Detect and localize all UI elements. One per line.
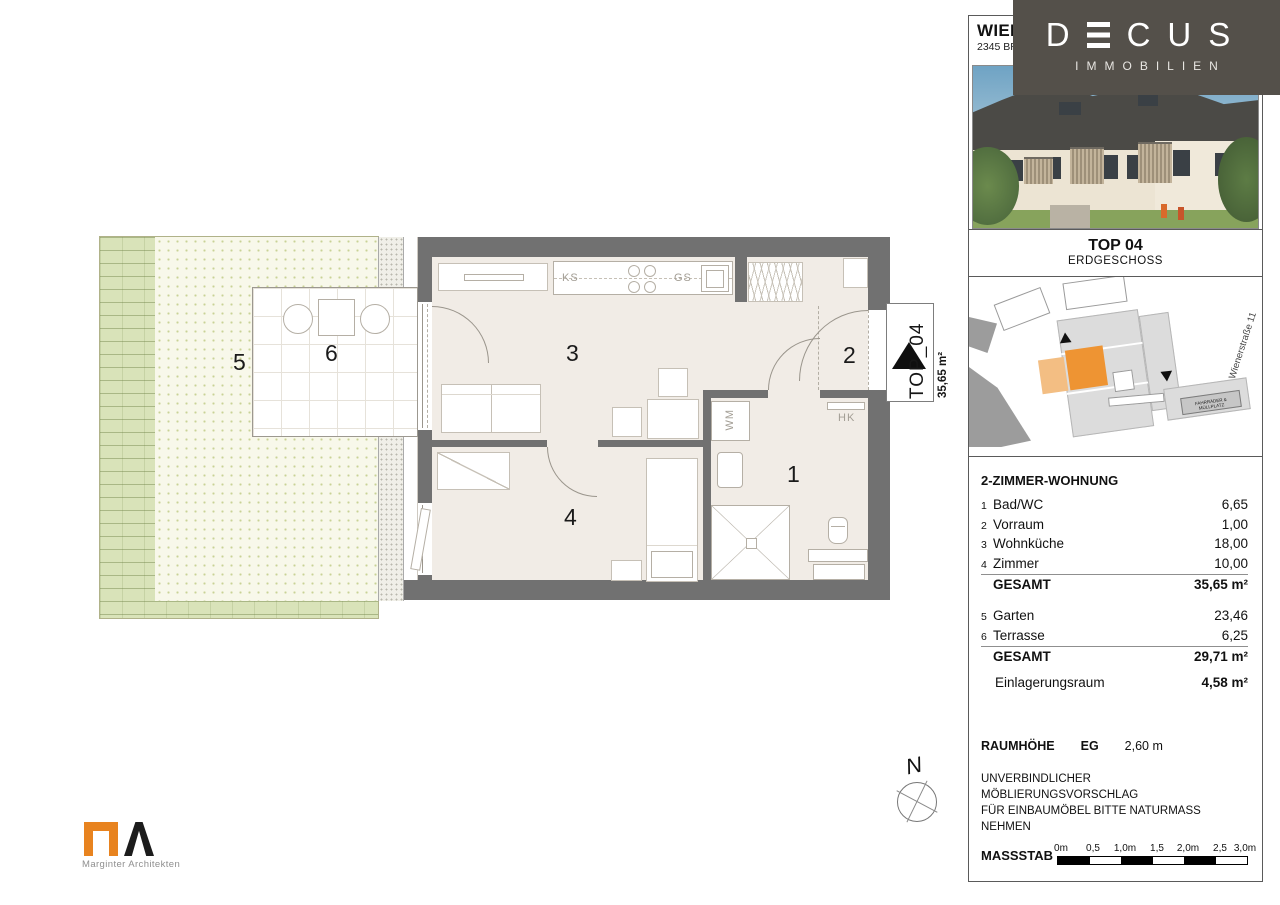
- table-row: 3 Wohnküche 18,00: [981, 535, 1248, 555]
- row-area: 18,00: [1214, 535, 1248, 554]
- brand-wordmark: D CUS: [1013, 0, 1280, 51]
- kitchen-sink: [701, 265, 729, 292]
- area-table: 2-ZIMMER-WOHNUNG 1 Bad/WC 6,65 2 Vorraum…: [969, 457, 1262, 881]
- photo-person: [1178, 207, 1184, 220]
- single-bed: [646, 458, 698, 582]
- unit-title: TOP 04: [969, 237, 1262, 255]
- brand-e-bars-icon: [1087, 22, 1110, 48]
- siteplan-building-group: [1045, 288, 1199, 450]
- wall-bottom: [404, 580, 890, 600]
- photo-grass: [973, 210, 1258, 228]
- row-area: 6,25: [1222, 627, 1248, 646]
- hall-radiator: [827, 402, 865, 410]
- architect-name: Marginter Architekten: [82, 859, 180, 870]
- room-height-floor: EG: [1081, 739, 1099, 753]
- room-number-bedroom: 4: [564, 504, 577, 531]
- storage-value: 4,58 m²: [1201, 673, 1248, 693]
- burner-4: [644, 281, 656, 293]
- table-row: 6 Terrasse 6,25: [981, 627, 1248, 648]
- bed-split-line: [491, 385, 492, 432]
- terrace-table: [318, 299, 355, 336]
- scale-tick: 1,5: [1141, 843, 1173, 854]
- sideboard: [438, 263, 548, 291]
- entry-marker-unit: TOP_04: [907, 307, 929, 399]
- room-height-value: 2,60 m: [1125, 739, 1163, 753]
- disclaimer-line-1: UNVERBINDLICHER MÖBLIERUNGSVORSCHLAG: [981, 771, 1248, 803]
- washing-machine: WM: [711, 401, 750, 441]
- double-bed: [441, 384, 541, 433]
- scale-ticks: 0m 0,5 1,0m 1,5 2,0m 2,5 3,0m: [1057, 843, 1249, 856]
- room-height-row: RAUMHÖHEEG2,60 m: [981, 739, 1248, 753]
- scale-tick: 3,0m: [1229, 843, 1261, 854]
- brand-subtitle: IMMOBILIEN: [1013, 59, 1280, 73]
- wall-bath-top-a: [703, 390, 768, 398]
- disclaimer-line-2: FÜR EINBAUMÖBEL BITTE NATURMASS NEHMEN: [981, 803, 1248, 835]
- row-name: Vorraum: [993, 516, 1222, 535]
- dishwasher-label: GS: [674, 272, 692, 284]
- burner-2: [644, 265, 656, 277]
- shower-drain: [746, 538, 757, 549]
- hedge-left: [100, 237, 155, 618]
- washbasin: [717, 452, 743, 488]
- photo-window: [1173, 150, 1190, 176]
- bath-vanity-bottom: [813, 564, 865, 580]
- shower: [711, 505, 790, 580]
- scale-bar-segments: [1057, 856, 1248, 865]
- wall-pillar-kitchen: [735, 257, 747, 302]
- table-row: 2 Vorraum 1,00: [981, 516, 1248, 536]
- unit-card: TOP 04 ERDGESCHOSS: [969, 229, 1262, 277]
- photo-path: [1050, 205, 1090, 228]
- disclaimer: UNVERBINDLICHER MÖBLIERUNGSVORSCHLAG FÜR…: [981, 771, 1248, 835]
- storage-row: Einlagerungsraum 4,58 m²: [981, 673, 1248, 693]
- wall-right-lower: [868, 390, 890, 580]
- row-number: 3: [981, 536, 988, 555]
- window-glass-line: [422, 304, 423, 428]
- floor-plan-sheet: 6 5 KS GS: [0, 0, 1280, 905]
- photo-person: [1161, 204, 1167, 219]
- siteplan-neighbor-1: [969, 317, 997, 353]
- siteplan-stair-box: [1112, 370, 1135, 393]
- bed-blanket-line: [647, 545, 697, 546]
- row-number: 5: [981, 608, 988, 627]
- corner-shelf: [843, 258, 868, 288]
- unit-floor: ERDGESCHOSS: [969, 255, 1262, 267]
- brand-logo: D CUS IMMOBILIEN: [1013, 0, 1280, 95]
- siteplan-roof-outline-2: [994, 287, 1051, 331]
- room-number-bath: 1: [787, 461, 800, 488]
- siteplan-neighbor-2: [969, 367, 1031, 447]
- terrace-door-window: [418, 302, 432, 430]
- scale-tick: 2,0m: [1172, 843, 1204, 854]
- row-name: Terrasse: [993, 627, 1222, 646]
- room-number-terrace: 6: [325, 340, 338, 367]
- site-plan: FAHRRÄDER & MÜLLPLATZ Wienerstraße 11: [969, 277, 1262, 457]
- photo-roof-window: [1059, 102, 1082, 115]
- scale-tick: 0m: [1045, 843, 1077, 854]
- apartment-type: 2-ZIMMER-WOHNUNG: [981, 473, 1248, 488]
- info-sidebar: WIEN 2345 BR: [968, 15, 1263, 882]
- sink-basin: [706, 270, 724, 288]
- wall-top: [418, 237, 890, 257]
- dining-chair-left: [612, 407, 642, 437]
- terrace-chair-right: [360, 304, 390, 334]
- wall-bath-left: [703, 390, 711, 580]
- dining-chair-top: [658, 368, 688, 397]
- terrace: 6: [252, 287, 418, 437]
- toilet-seat-line: [831, 526, 845, 527]
- siteplan-unit-highlight: [1065, 345, 1108, 390]
- row-name: Zimmer: [993, 555, 1214, 574]
- siteplan-unit-garden: [1038, 357, 1068, 394]
- room-number-garden: 5: [233, 349, 246, 376]
- scale-label: MASSSTAB: [981, 848, 1053, 863]
- room-number-living: 3: [566, 340, 579, 367]
- photo-balcony: [1024, 157, 1053, 185]
- siteplan-street-label: Wienerstraße 11: [1227, 311, 1259, 381]
- bedroom-wardrobe: [437, 452, 510, 490]
- total-label: GESAMT: [993, 647, 1194, 667]
- row-name: Garten: [993, 607, 1214, 626]
- table-row: 5 Garten 23,46: [981, 607, 1248, 627]
- entry-marker-area: 35,65 m²: [937, 318, 949, 398]
- storage-label: Einlagerungsraum: [995, 673, 1201, 693]
- total-label: GESAMT: [993, 575, 1194, 595]
- washer-label: WM: [724, 409, 736, 431]
- dining-table: [647, 399, 699, 439]
- brand-letter: CUS: [1127, 18, 1248, 51]
- room-height-label: RAUMHÖHE: [981, 739, 1055, 753]
- architect-logo-icon: [84, 822, 118, 856]
- total-value: 29,71 m²: [1194, 647, 1248, 667]
- scale-tick: 0,5: [1077, 843, 1109, 854]
- row-number: 2: [981, 517, 988, 536]
- table-row: 4 Zimmer 10,00: [981, 555, 1248, 576]
- burner-1: [628, 265, 640, 277]
- terrace-chair-left: [283, 304, 313, 334]
- wall-left-a: [418, 257, 432, 302]
- bed-head-line: [442, 394, 540, 395]
- architect-logo-icon-2: [124, 822, 154, 856]
- nightstand: [611, 560, 642, 581]
- photo-balcony: [1138, 142, 1172, 183]
- row-number: 6: [981, 628, 988, 647]
- wall-left-b: [418, 430, 432, 503]
- wall-left-c: [418, 575, 432, 580]
- room-number-hall: 2: [843, 342, 856, 369]
- north-letter: N: [903, 752, 924, 781]
- radiator-label: HK: [838, 412, 855, 424]
- outdoor-total-row: GESAMT 29,71 m²: [981, 647, 1248, 667]
- row-area: 10,00: [1214, 555, 1248, 574]
- toilet: [828, 517, 848, 544]
- kitchen-counter: KS GS: [553, 261, 733, 295]
- row-name: Bad/WC: [993, 496, 1222, 515]
- brand-letter: D: [1046, 18, 1070, 51]
- sideboard-handle: [464, 274, 524, 281]
- hall-wardrobe: [748, 262, 803, 302]
- total-value: 35,65 m²: [1194, 575, 1248, 595]
- window-glass-line2: [427, 304, 428, 428]
- scale-bar: 0m 0,5 1,0m 1,5 2,0m 2,5 3,0m: [1057, 843, 1249, 865]
- table-row: 1 Bad/WC 6,65: [981, 496, 1248, 516]
- row-area: 23,46: [1214, 607, 1248, 626]
- wall-room34-b: [598, 440, 703, 447]
- scale-tick: 1,0m: [1109, 843, 1141, 854]
- fridge-label: KS: [562, 272, 579, 284]
- bed-pillow: [651, 551, 693, 578]
- row-number: 4: [981, 556, 988, 575]
- photo-window: [1104, 155, 1118, 179]
- wall-bath-top-b: [820, 390, 868, 398]
- wall-room34-a: [432, 440, 547, 447]
- indoor-total-row: GESAMT 35,65 m²: [981, 575, 1248, 595]
- row-number: 1: [981, 497, 988, 516]
- bath-vanity-top: [808, 549, 868, 562]
- photo-balcony: [1070, 147, 1104, 184]
- row-area: 1,00: [1222, 516, 1248, 535]
- row-area: 6,65: [1222, 496, 1248, 515]
- hedge-bottom: [100, 601, 378, 618]
- burner-3: [628, 281, 640, 293]
- row-name: Wohnküche: [993, 535, 1214, 554]
